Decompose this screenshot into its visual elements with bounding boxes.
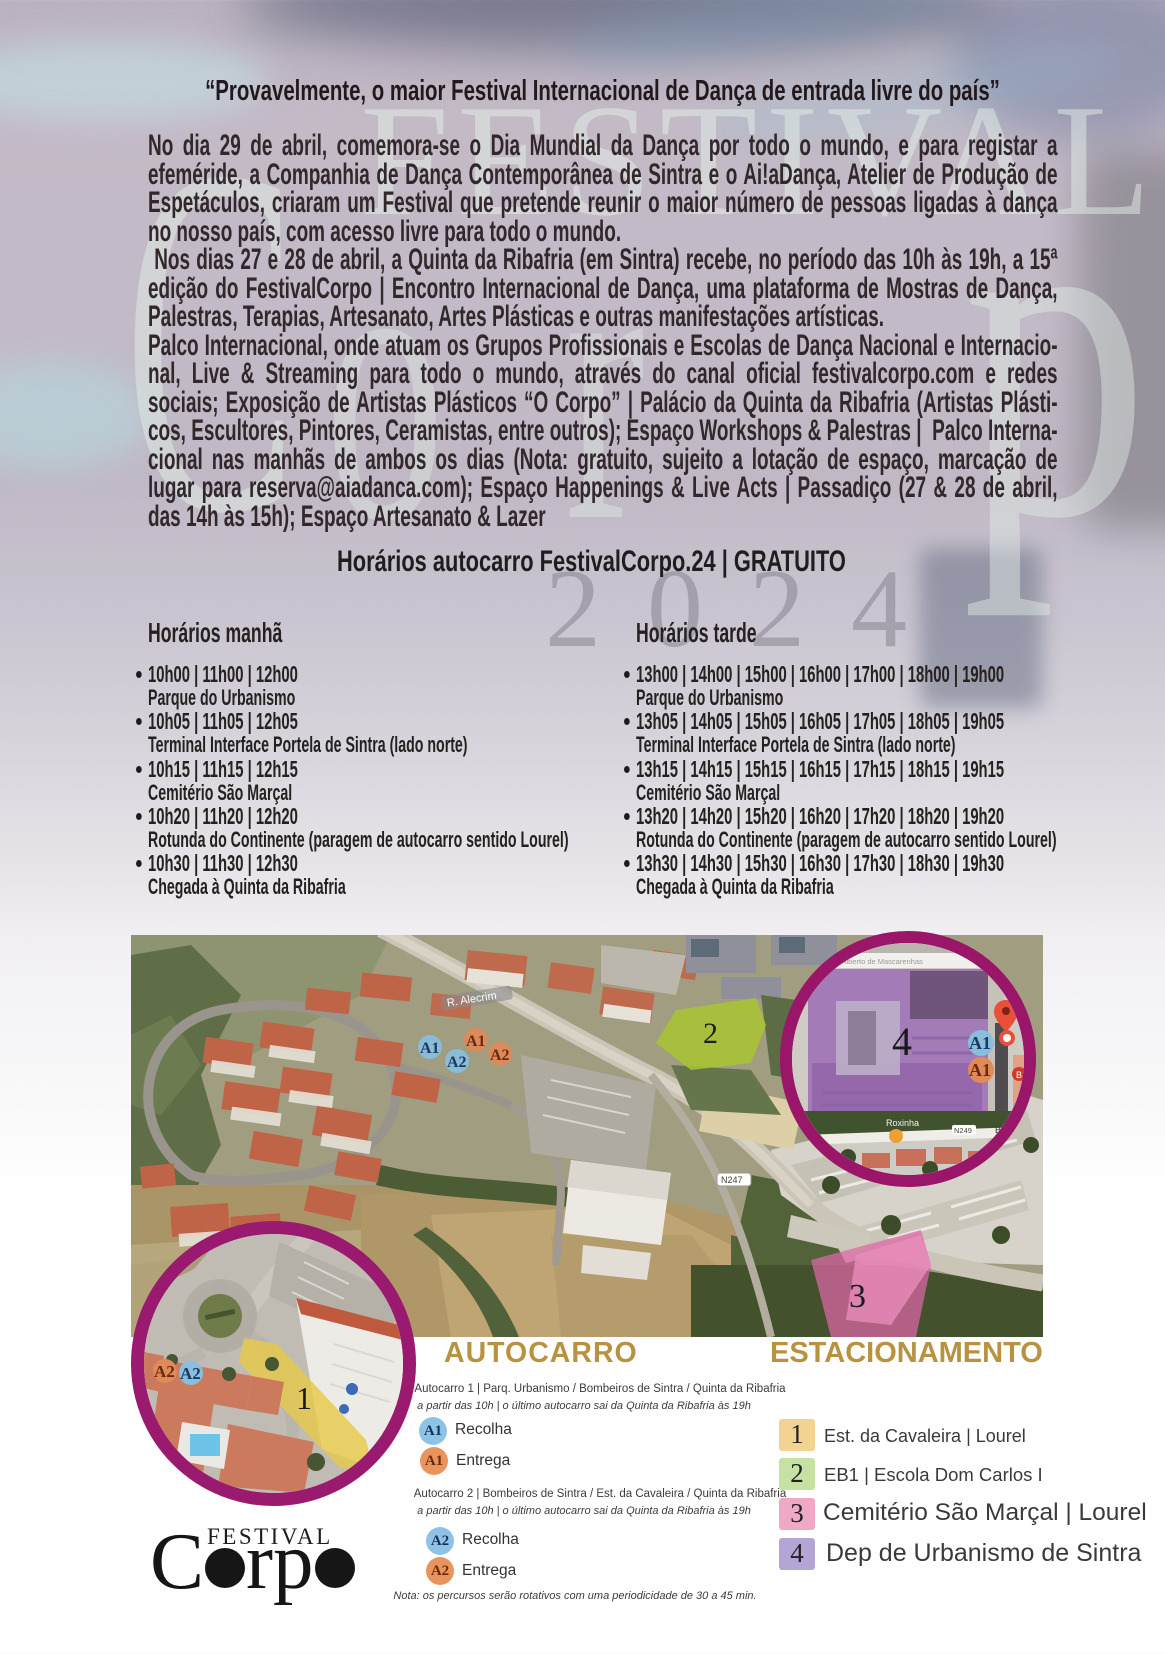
svg-text:E: E xyxy=(1018,1015,1024,1026)
svg-text:Av. Dr. Alberto de Mascarenhas: Av. Dr. Alberto de Mascarenhas xyxy=(818,957,923,966)
svg-text:N249: N249 xyxy=(954,1126,972,1135)
svg-text:A2: A2 xyxy=(154,1362,175,1381)
svg-text:A2: A2 xyxy=(490,1047,510,1064)
svg-text:2: 2 xyxy=(703,1017,718,1050)
svg-text:A1: A1 xyxy=(969,1033,991,1053)
svg-text:A1: A1 xyxy=(466,1033,486,1050)
svg-text:A1: A1 xyxy=(969,1060,991,1080)
svg-text:3: 3 xyxy=(849,1278,866,1315)
svg-text:N247: N247 xyxy=(721,1175,743,1185)
svg-text:Roxinha: Roxinha xyxy=(886,1118,919,1128)
svg-text:1: 1 xyxy=(296,1380,312,1416)
svg-text:A2: A2 xyxy=(447,1054,467,1071)
svg-text:A2: A2 xyxy=(180,1364,201,1383)
svg-text:B: B xyxy=(1016,1070,1022,1080)
svg-text:4: 4 xyxy=(892,1019,912,1064)
svg-text:A1: A1 xyxy=(420,1040,440,1057)
